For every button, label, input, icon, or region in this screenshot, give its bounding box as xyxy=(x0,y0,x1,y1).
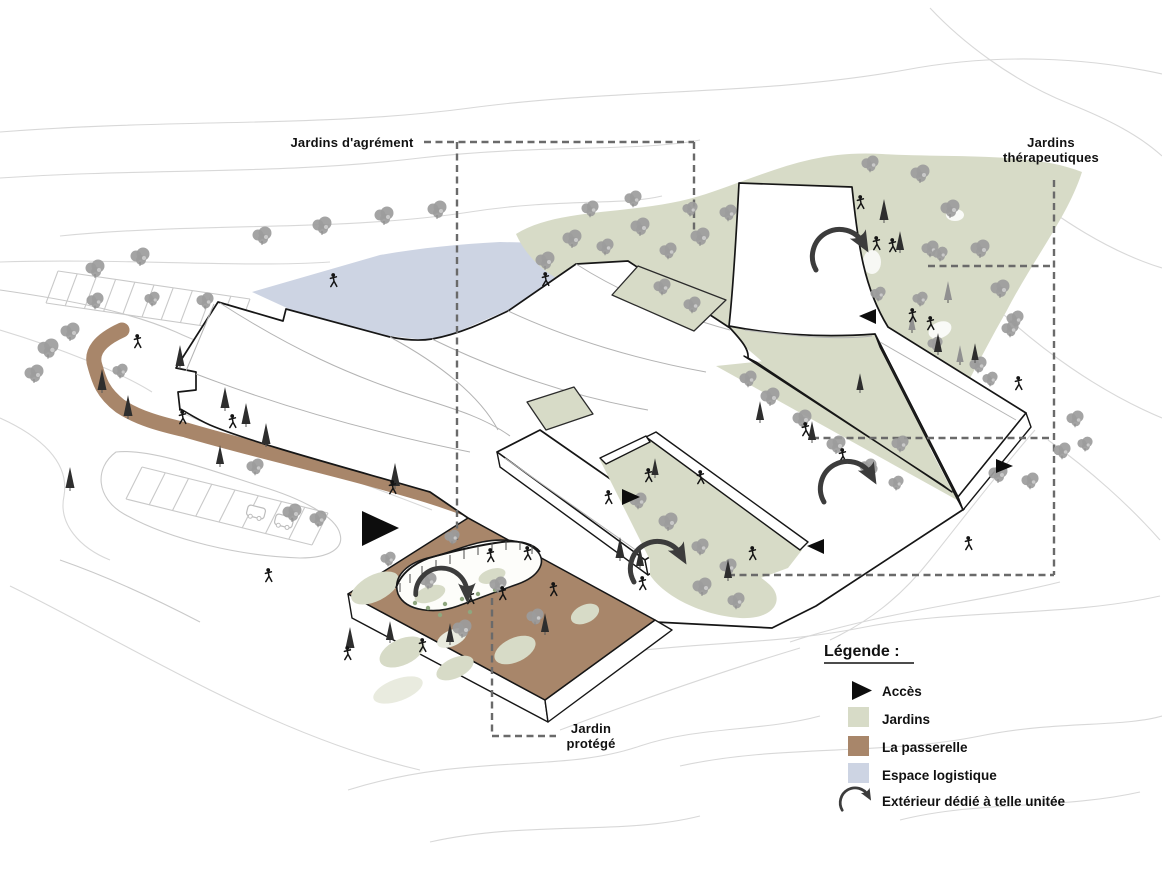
access-triangle-icon xyxy=(362,511,399,546)
legend-item-label: Accès xyxy=(882,684,922,699)
label-jardin-protege-line1: Jardin xyxy=(571,721,611,736)
legend-item-exterieur: Extérieur dédié à telle unitée xyxy=(840,788,1065,810)
plant-icon xyxy=(460,597,464,601)
parking-stall-line xyxy=(219,490,235,522)
site-plan-canvas: Jardins d'agrément Jardins thérapeutique… xyxy=(0,0,1162,877)
access-triangle-icon xyxy=(852,681,872,700)
plant-icon xyxy=(426,606,430,610)
legend-title: Légende : xyxy=(824,643,900,660)
tree-icon xyxy=(624,191,641,208)
label-jardins-therapeutiques-line2: thérapeutiques xyxy=(1003,150,1099,165)
tree-icon xyxy=(1001,321,1018,338)
legend-item-label: Extérieur dédié à telle unitée xyxy=(882,794,1066,809)
tree-icon xyxy=(380,552,395,567)
tree-icon xyxy=(61,323,80,342)
legend: Légende : Accès Jardins La passerelle Es… xyxy=(824,643,1066,810)
parking-stall-line xyxy=(196,484,212,516)
label-jardins-therapeutiques-line1: Jardins xyxy=(1027,135,1075,150)
parking-stall-line xyxy=(180,291,192,323)
tree-icon xyxy=(25,365,44,384)
tree-icon xyxy=(1077,437,1092,452)
tree-icon xyxy=(112,364,127,379)
legend-item-acces: Accès xyxy=(852,681,922,700)
parking-stall-line xyxy=(123,282,135,314)
legend-item-passerelle: La passerelle xyxy=(848,736,968,756)
parking-stall-line xyxy=(173,479,189,511)
person-figure xyxy=(965,536,971,550)
tree-icon xyxy=(38,338,59,358)
tree-icon xyxy=(196,293,213,310)
parking-stall-line xyxy=(65,274,77,306)
plant-icon xyxy=(413,601,417,605)
legend-item-label: Jardins xyxy=(882,712,930,727)
tree-icon xyxy=(1053,443,1070,460)
tree-icon xyxy=(131,248,150,267)
tree-icon xyxy=(309,511,326,528)
parking-stall-line xyxy=(161,288,173,320)
tree-icon xyxy=(313,217,332,236)
site-plan-diagram: Jardins d'agrément Jardins thérapeutique… xyxy=(0,0,1162,877)
plant-icon xyxy=(438,613,442,617)
person-figure xyxy=(1015,376,1021,389)
conifer-icon xyxy=(216,445,224,467)
person-figure xyxy=(265,568,271,582)
tree-icon xyxy=(253,227,272,246)
legend-item-label: La passerelle xyxy=(882,740,968,755)
color-swatch-icon xyxy=(848,763,869,783)
color-swatch-icon xyxy=(848,736,869,756)
label-jardin-protege-line2: protégé xyxy=(566,736,615,751)
tree-icon xyxy=(1066,411,1083,428)
color-swatch-icon xyxy=(848,707,869,727)
legend-item-label: Espace logistique xyxy=(882,768,997,783)
legend-item-logistique: Espace logistique xyxy=(848,763,997,783)
plant-icon xyxy=(443,602,447,606)
label-jardins-agrement: Jardins d'agrément xyxy=(290,135,413,150)
tree-icon xyxy=(428,201,447,220)
tree-icon xyxy=(1021,473,1038,490)
conifer-icon xyxy=(66,467,75,491)
tree-icon xyxy=(246,459,263,476)
parking-stall-line xyxy=(104,279,116,311)
legend-item-jardins: Jardins xyxy=(848,707,930,727)
parking-stall-line xyxy=(126,467,142,499)
curved-arrow-icon xyxy=(840,788,868,810)
plant-icon xyxy=(476,592,480,596)
parking-stall-line xyxy=(149,473,165,505)
person-figure xyxy=(134,334,140,347)
plant-icon xyxy=(468,610,472,614)
car-icon xyxy=(245,504,266,521)
